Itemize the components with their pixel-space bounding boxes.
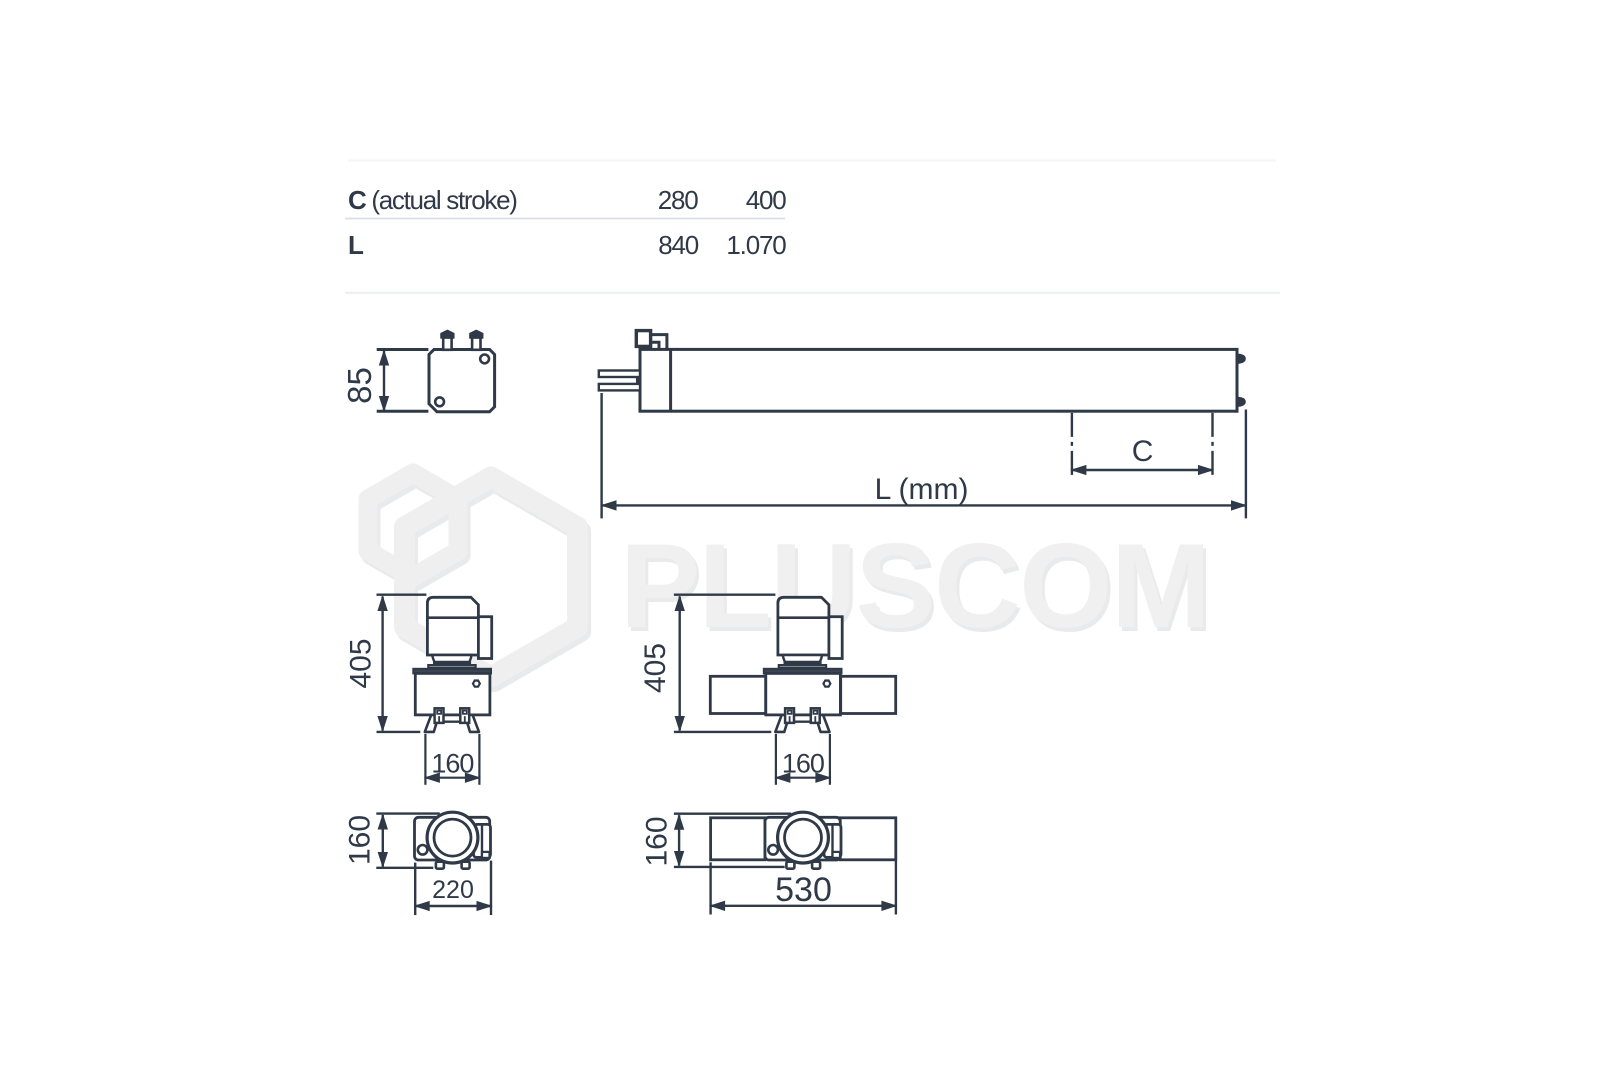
svg-text:280: 280 [658, 185, 699, 215]
svg-text:400: 400 [746, 185, 787, 215]
svg-text:PLUSCOM: PLUSCOM [620, 519, 1210, 653]
svg-text:160: 160 [431, 748, 473, 778]
svg-text:C: C [1132, 435, 1154, 468]
svg-text:220: 220 [432, 876, 474, 904]
svg-text:160: 160 [343, 815, 376, 865]
svg-text:85: 85 [341, 367, 378, 404]
svg-text:1.070: 1.070 [726, 230, 786, 260]
svg-text:160: 160 [641, 816, 674, 866]
svg-text:840: 840 [658, 230, 699, 260]
svg-text:C (actual stroke): C (actual stroke) [348, 185, 517, 215]
svg-text:530: 530 [775, 871, 832, 909]
svg-text:405: 405 [639, 643, 672, 693]
svg-text:L (mm): L (mm) [875, 473, 969, 506]
svg-text:L: L [348, 230, 364, 260]
svg-text:405: 405 [345, 638, 378, 688]
